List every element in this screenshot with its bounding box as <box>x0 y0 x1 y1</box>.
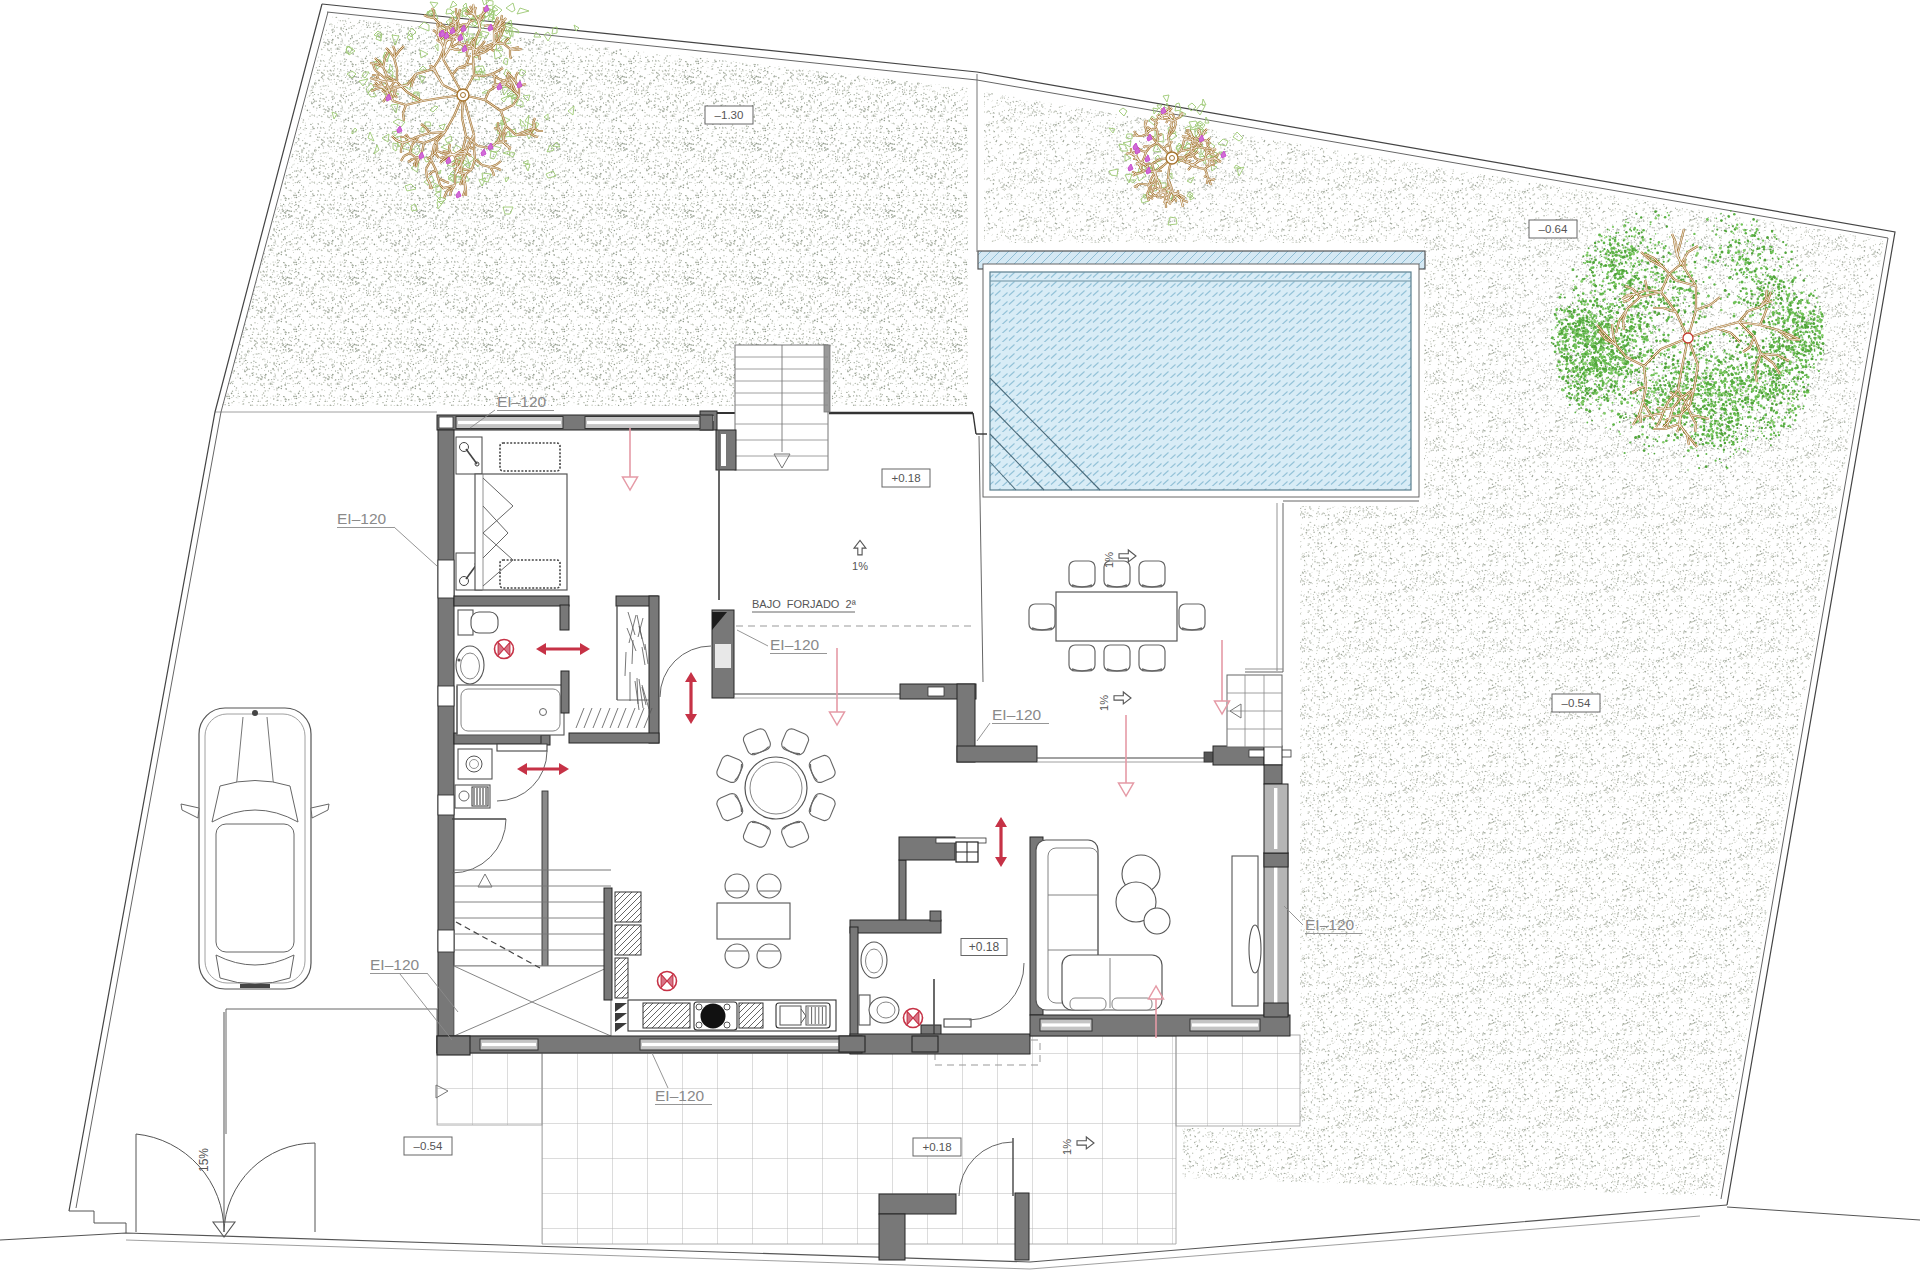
svg-text:1%: 1% <box>1098 695 1110 711</box>
svg-text:–1.30: –1.30 <box>715 109 744 121</box>
svg-text:–0.64: –0.64 <box>1539 223 1568 235</box>
svg-text:EI–120: EI–120 <box>337 510 387 527</box>
svg-text:1%: 1% <box>852 560 868 572</box>
svg-text:EI–120: EI–120 <box>1305 916 1355 933</box>
svg-text:EI–120: EI–120 <box>497 393 547 410</box>
svg-text:15%: 15% <box>197 1148 211 1172</box>
svg-text:–0.54: –0.54 <box>414 1140 443 1152</box>
svg-text:BAJO FORJADO 2ª: BAJO FORJADO 2ª <box>752 598 857 610</box>
svg-text:–0.54: –0.54 <box>1562 697 1591 709</box>
svg-text:+0.18: +0.18 <box>922 1141 951 1153</box>
svg-text:EI–120: EI–120 <box>370 956 420 973</box>
svg-text:1%: 1% <box>1061 1139 1073 1155</box>
svg-text:EI–120: EI–120 <box>655 1087 705 1104</box>
svg-text:+0.18: +0.18 <box>891 472 920 484</box>
svg-text:EI–120: EI–120 <box>770 636 820 653</box>
svg-text:1%: 1% <box>1103 552 1115 568</box>
svg-text:+0.18: +0.18 <box>969 940 1000 954</box>
svg-text:EI–120: EI–120 <box>992 706 1042 723</box>
